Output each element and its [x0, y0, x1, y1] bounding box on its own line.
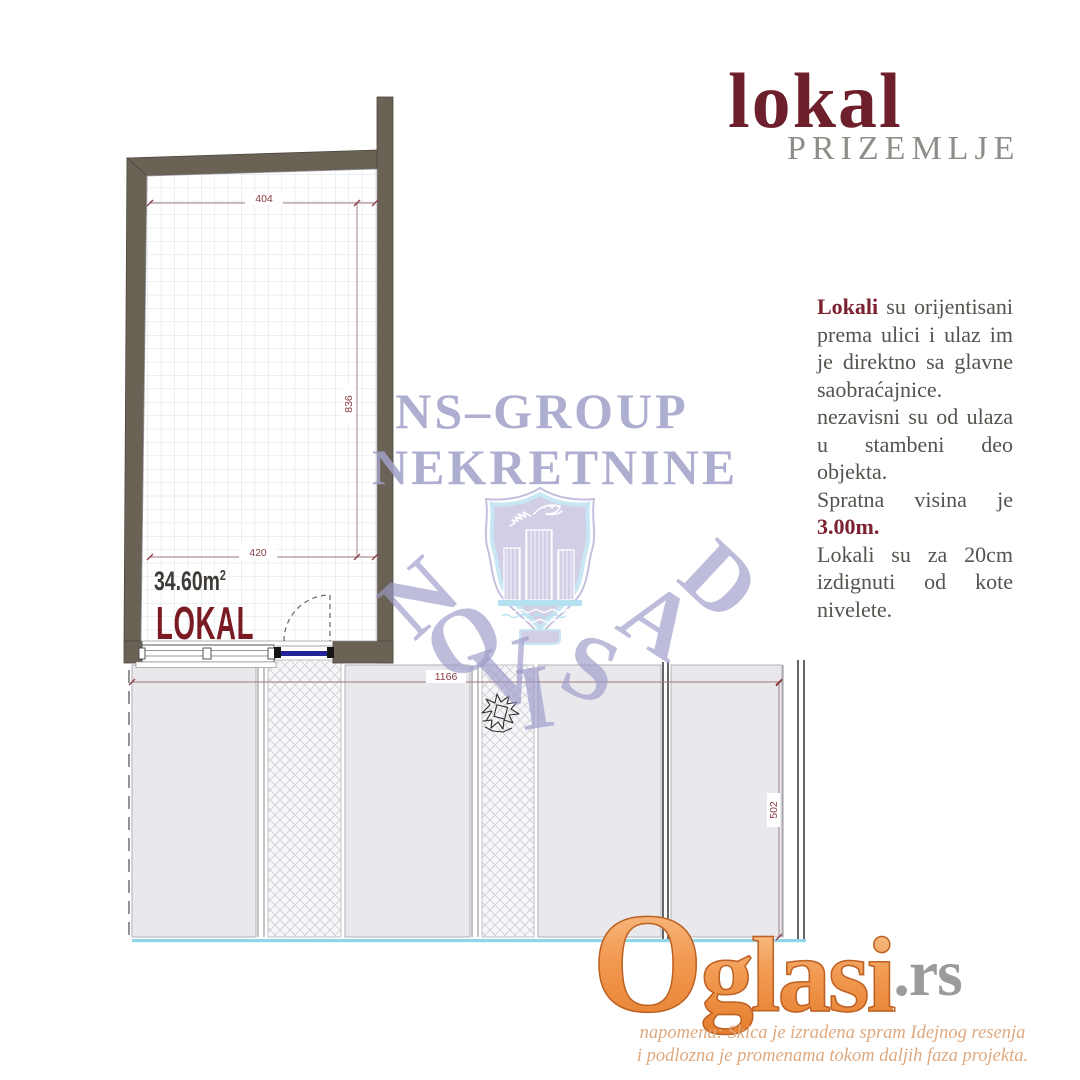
- window-mullion: [139, 648, 145, 659]
- area-value: 34.60m: [154, 566, 220, 596]
- window-sill: [136, 662, 276, 668]
- note-line-1: napomena: Skica je izradena spram Idejno…: [600, 1022, 1065, 1045]
- door-jamb: [327, 647, 334, 658]
- note-line-2: i podlozna je promenama tokom daljih faz…: [600, 1045, 1065, 1068]
- page-subtitle: PRIZEMLJE: [787, 130, 1020, 168]
- disclaimer-note: napomena: Skica je izradena spram Idejno…: [600, 1022, 1065, 1068]
- description-lead: Lokali: [817, 294, 878, 319]
- description-text: Lokali su orijentisani prema ulici i ula…: [817, 293, 1013, 623]
- description-paragraph-3: Lokali su za 20cm izdignuti od kote nive…: [817, 541, 1013, 624]
- walkway-panel: [132, 665, 256, 937]
- description-paragraph-1: Lokali su orijentisani prema ulici i ula…: [817, 293, 1013, 486]
- height-value: 3.00m.: [817, 514, 879, 539]
- dim-bottom: 420: [239, 546, 277, 559]
- dimension-label: 404: [255, 193, 273, 205]
- dim-walk-depth: 502: [767, 793, 780, 827]
- paved-strip: [268, 660, 341, 937]
- room-name-label: LOKAL: [156, 596, 254, 650]
- dim-side: 836: [342, 386, 355, 422]
- brand-tld: .rs: [893, 937, 961, 1010]
- dimension-label: 502: [768, 801, 780, 819]
- brand-initial: O: [592, 884, 700, 1042]
- agency-watermark: NS–GROUP NEKRETNINE: [372, 383, 712, 495]
- dimension-label: 836: [343, 395, 355, 413]
- dim-top: 404: [245, 192, 283, 205]
- bottom-wall-segment: [333, 641, 393, 663]
- area-exponent: 2: [220, 567, 226, 584]
- window-mullion: [268, 648, 275, 659]
- description-body: su orijentisani prema ulici i ulaz im je…: [817, 294, 1013, 484]
- door-jamb: [274, 647, 281, 658]
- height-text: Spratna visina je: [817, 487, 1013, 512]
- dimension-label: 420: [249, 547, 267, 559]
- brand-word: glasi: [700, 917, 893, 1035]
- plinth-text: Lokali su za 20cm izdignuti od kote nive…: [817, 542, 1013, 622]
- listing-flyer: 404 420 836 1166 502 NS–GROUP NEKRETNINE: [0, 0, 1080, 1080]
- room-area-label: 34.60m2: [154, 566, 226, 597]
- walkway-panel: [345, 665, 470, 937]
- door-threshold: [281, 651, 327, 656]
- agency-name-line1: NS–GROUP: [372, 383, 712, 439]
- description-paragraph-2: Spratna visina je 3.00m.: [817, 486, 1013, 541]
